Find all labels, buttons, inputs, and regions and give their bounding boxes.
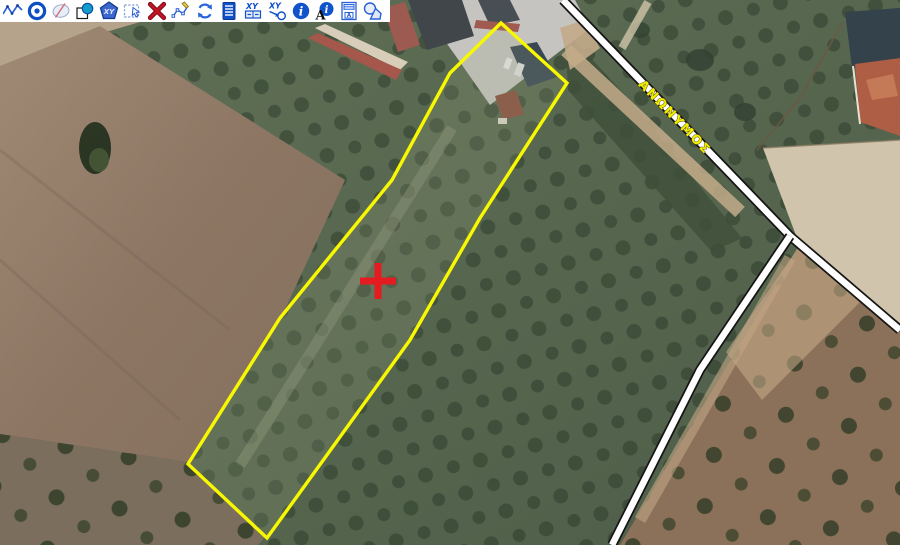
delete-x-icon xyxy=(147,1,167,21)
ellipse-slash-icon xyxy=(51,1,71,21)
goto-xy-icon: XY xyxy=(267,1,287,21)
select-feature-button[interactable] xyxy=(121,0,144,22)
svg-text:i: i xyxy=(298,5,303,19)
list-document-icon xyxy=(219,1,239,21)
svg-text:A: A xyxy=(315,9,326,22)
draw-square-circle-button[interactable] xyxy=(73,0,96,22)
geometry-shapes-button[interactable] xyxy=(361,0,384,22)
xy-coordinate-table-button[interactable]: XY xyxy=(241,0,264,22)
goto-xy-button[interactable]: XY xyxy=(265,0,288,22)
svg-text:XY: XY xyxy=(102,8,114,16)
delete-feature-button[interactable] xyxy=(145,0,168,22)
shapes-icon xyxy=(363,1,383,21)
draw-polyline-button[interactable] xyxy=(1,0,24,22)
polygon-xy-icon: XY xyxy=(99,1,119,21)
refresh-icon xyxy=(195,1,215,21)
label-form-button[interactable]: A xyxy=(337,0,360,22)
form-label-icon: A xyxy=(339,1,359,21)
edit-vertices-icon xyxy=(171,1,191,21)
map-canvas[interactable]: ΑΝΩΝΥΜΟΣ xyxy=(0,0,900,545)
refresh-button[interactable] xyxy=(193,0,216,22)
map-toolbar: XY xyxy=(0,0,390,22)
select-cursor-icon xyxy=(123,1,143,21)
info-icon: i xyxy=(291,1,311,21)
draw-circle-center-button[interactable] xyxy=(25,0,48,22)
square-circle-icon xyxy=(75,1,95,21)
attribute-info-icon: i A xyxy=(315,1,335,21)
svg-text:XY: XY xyxy=(245,2,259,11)
polygon-from-xy-button[interactable]: XY xyxy=(97,0,120,22)
bullseye-icon xyxy=(27,1,47,21)
identify-attributes-button[interactable]: i A xyxy=(313,0,336,22)
svg-text:XY: XY xyxy=(268,2,282,11)
attribute-list-button[interactable] xyxy=(217,0,240,22)
polyline-icon xyxy=(3,1,23,21)
svg-text:A: A xyxy=(346,13,351,19)
map-viewer-window: ΑΝΩΝΥΜΟΣ xyxy=(0,0,900,545)
draw-ellipse-button[interactable] xyxy=(49,0,72,22)
identify-button[interactable]: i xyxy=(289,0,312,22)
xy-table-icon: XY xyxy=(243,1,263,21)
edit-vertices-button[interactable] xyxy=(169,0,192,22)
